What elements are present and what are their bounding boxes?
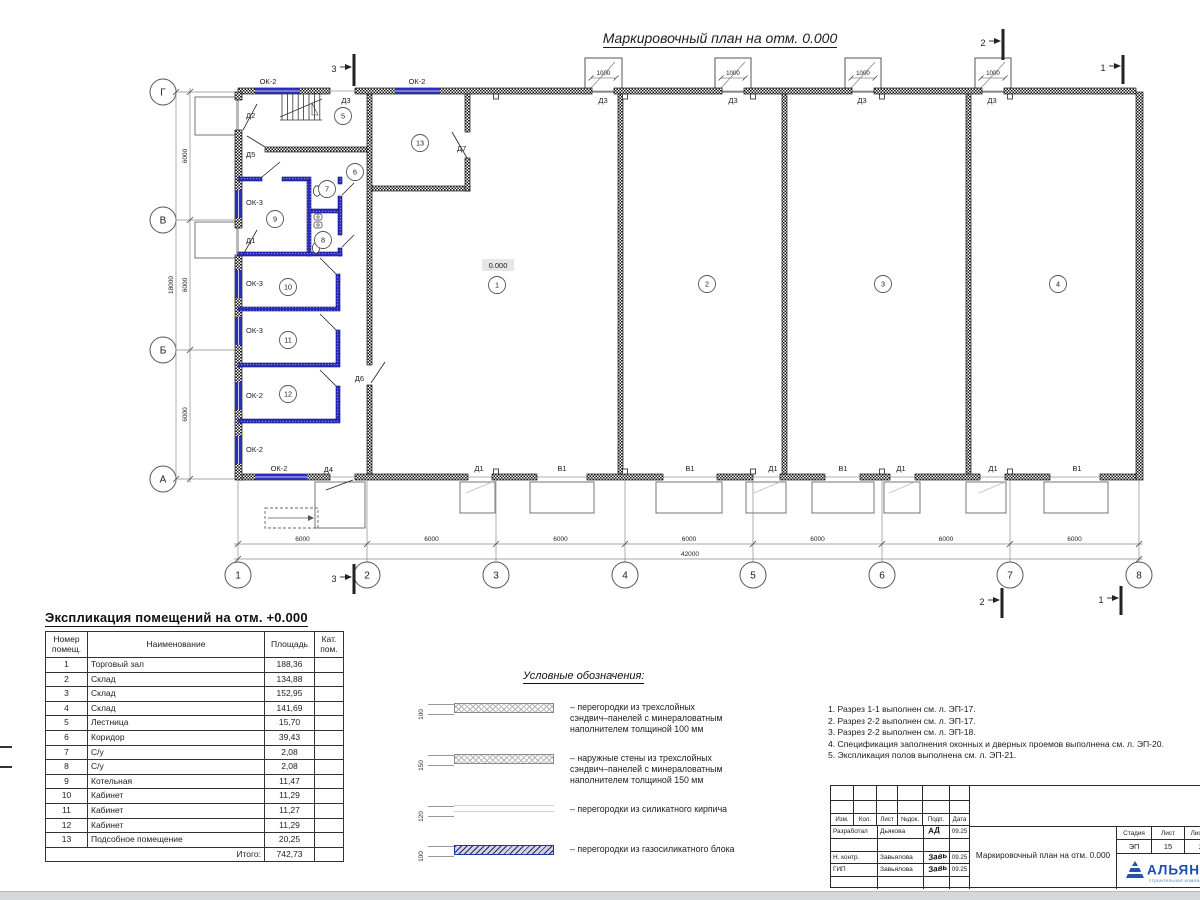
explication-table-body: 1Торговый зал188,362Склад134,883Склад152… bbox=[46, 658, 344, 862]
svg-text:1000: 1000 bbox=[597, 70, 611, 77]
room-cat bbox=[315, 745, 344, 760]
legend-swatch bbox=[454, 805, 554, 812]
svg-text:1000: 1000 bbox=[856, 70, 870, 77]
svg-text:Д3: Д3 bbox=[728, 96, 737, 105]
room-cat bbox=[315, 658, 344, 673]
svg-text:2: 2 bbox=[980, 38, 985, 48]
titleblock-cell bbox=[853, 786, 876, 800]
total-empty bbox=[315, 847, 344, 862]
table-row: 9Котельная11,47 bbox=[46, 774, 344, 789]
svg-text:9: 9 bbox=[273, 215, 277, 224]
svg-text:7: 7 bbox=[325, 185, 329, 194]
svg-text:2: 2 bbox=[979, 597, 984, 607]
table-row: 8С/у2,08 bbox=[46, 760, 344, 775]
svg-text:В1: В1 bbox=[557, 464, 566, 473]
titleblock-cell bbox=[897, 800, 922, 814]
titleblock-doc-title: Маркировочный план на отм. 0.000 bbox=[969, 826, 1116, 889]
svg-text:6: 6 bbox=[353, 168, 357, 177]
note-line: 4. Спецификация заполнения оконных и две… bbox=[828, 739, 1200, 751]
svg-text:3: 3 bbox=[881, 280, 885, 289]
titleblock-role bbox=[831, 876, 877, 889]
titleblock-date: 09.25 bbox=[949, 863, 969, 876]
svg-text:6000: 6000 bbox=[295, 536, 310, 543]
room-cat bbox=[315, 833, 344, 848]
svg-text:3: 3 bbox=[331, 64, 336, 74]
table-row: 12Кабинет11,29 bbox=[46, 818, 344, 833]
titleblock-header: Кол. bbox=[853, 813, 876, 825]
room-name: Подсобное помещение bbox=[88, 833, 265, 848]
svg-text:6: 6 bbox=[879, 571, 885, 582]
svg-text:Д1: Д1 bbox=[988, 464, 997, 473]
svg-text:1000: 1000 bbox=[986, 70, 1000, 77]
sheets-value: 2 bbox=[1184, 839, 1200, 853]
room-name: Склад bbox=[88, 672, 265, 687]
room-name: Коридор bbox=[88, 730, 265, 745]
room-name: Склад bbox=[88, 687, 265, 702]
walls-layer bbox=[235, 88, 1143, 480]
legend-item-label: – перегородки из трехслойных сэндвич–пан… bbox=[570, 702, 723, 735]
svg-text:3: 3 bbox=[493, 571, 499, 582]
explication-col-header: Наименование bbox=[88, 632, 265, 658]
svg-text:12: 12 bbox=[284, 390, 292, 399]
svg-text:Д3: Д3 bbox=[598, 96, 607, 105]
svg-text:Б: Б bbox=[160, 346, 167, 357]
alliance-triangle-icon bbox=[1125, 860, 1145, 880]
titleblock-name: Завьялова bbox=[877, 863, 923, 876]
stage-value: ЭП bbox=[1116, 839, 1151, 853]
titleblock-role: ГИП bbox=[831, 863, 877, 876]
titleblock-date: 09.25 bbox=[949, 825, 969, 838]
table-row: 7С/у2,08 bbox=[46, 745, 344, 760]
room-number: 2 bbox=[46, 672, 88, 687]
svg-text:Г: Г bbox=[160, 88, 166, 99]
titleblock-upper-cell bbox=[969, 786, 1200, 826]
legend-dim: 120 bbox=[418, 804, 454, 826]
sheet-value: 15 bbox=[1151, 839, 1184, 853]
room-number: 13 bbox=[46, 833, 88, 848]
title-block: Изм.Кол.Лист№док.Подп.ДатаРазработалДьяк… bbox=[830, 785, 1200, 888]
room-area: 15,70 bbox=[265, 716, 315, 731]
room-area: 11,47 bbox=[265, 774, 315, 789]
company-subtitle: строительная компания bbox=[1149, 878, 1200, 883]
svg-text:18000: 18000 bbox=[168, 276, 175, 294]
titleblock-date bbox=[949, 838, 969, 851]
svg-text:8: 8 bbox=[1136, 571, 1142, 582]
room-name: Котельная bbox=[88, 774, 265, 789]
svg-text:42000: 42000 bbox=[681, 551, 699, 558]
room-name: Склад bbox=[88, 701, 265, 716]
room-cat bbox=[315, 730, 344, 745]
svg-text:ОК-3: ОК-3 bbox=[246, 326, 263, 335]
note-line: 2. Разрез 2-2 выполнен см. л. ЭП-17. bbox=[828, 716, 1200, 728]
room-name: Кабинет bbox=[88, 818, 265, 833]
titleblock-signature: Завь bbox=[923, 863, 949, 876]
legend-swatch bbox=[454, 754, 554, 764]
legend-title: Условные обозначения: bbox=[523, 670, 644, 684]
table-row: 11Кабинет11,27 bbox=[46, 803, 344, 818]
drawing-sheet: Маркировочный план на отм. 0.000 1000100… bbox=[0, 0, 1200, 900]
titleblock-cell bbox=[949, 786, 969, 800]
svg-text:6000: 6000 bbox=[182, 277, 189, 292]
legend-swatch bbox=[454, 845, 554, 855]
svg-text:Д3: Д3 bbox=[987, 96, 996, 105]
room-number: 5 bbox=[46, 716, 88, 731]
titleblock-header: Подп. bbox=[922, 813, 949, 825]
room-cat bbox=[315, 774, 344, 789]
room-name: Кабинет bbox=[88, 803, 265, 818]
svg-text:Д2: Д2 bbox=[246, 111, 255, 120]
sheet-label: Лист bbox=[1151, 826, 1184, 839]
svg-text:1: 1 bbox=[1100, 63, 1105, 73]
room-number: 9 bbox=[46, 774, 88, 789]
titleblock-signature: АД bbox=[923, 825, 949, 838]
room-cat bbox=[315, 818, 344, 833]
svg-text:ОК-2: ОК-2 bbox=[271, 464, 288, 473]
company-name: АЛЬЯНС bbox=[1147, 863, 1200, 878]
svg-text:Д6: Д6 bbox=[355, 374, 364, 383]
titleblock-date: 09.25 bbox=[949, 851, 969, 864]
table-row: 13Подсобное помещение20,25 bbox=[46, 833, 344, 848]
room-number: 4 bbox=[46, 701, 88, 716]
explication-title: Экспликация помещений на отм. +0.000 bbox=[45, 610, 308, 627]
svg-text:ОК-3: ОК-3 bbox=[246, 198, 263, 207]
explication-col-header: Площадь bbox=[265, 632, 315, 658]
legend-item: 120– перегородки из силикатного кирпича bbox=[418, 804, 818, 826]
legend-dim: 100 bbox=[418, 844, 454, 866]
svg-text:10: 10 bbox=[284, 283, 292, 292]
room-number: 7 bbox=[46, 745, 88, 760]
titleblock-role bbox=[831, 838, 877, 851]
total-value: 742,73 bbox=[265, 847, 315, 862]
legend-item: 100– перегородки из трехслойных сэндвич–… bbox=[418, 702, 818, 735]
legend-dim: 150 bbox=[418, 753, 454, 775]
table-total-row: Итого:742,73 bbox=[46, 847, 344, 862]
svg-text:1: 1 bbox=[235, 571, 241, 582]
svg-text:Д1: Д1 bbox=[246, 236, 255, 245]
svg-text:6000: 6000 bbox=[182, 407, 189, 422]
room-name: Торговый зал bbox=[88, 658, 265, 673]
titleblock-role: Н. контр. bbox=[831, 851, 877, 864]
legend-item-label: – перегородки из силикатного кирпича bbox=[570, 804, 727, 815]
note-line: 1. Разрез 1-1 выполнен см. л. ЭП-17. bbox=[828, 704, 1200, 716]
svg-text:7: 7 bbox=[1007, 571, 1013, 582]
svg-text:Д1: Д1 bbox=[768, 464, 777, 473]
titleblock-header: Дата bbox=[949, 813, 969, 825]
titleblock-role: Разработал bbox=[831, 825, 877, 838]
table-row: 3Склад152,95 bbox=[46, 687, 344, 702]
room-cat bbox=[315, 687, 344, 702]
svg-text:Д7: Д7 bbox=[457, 144, 466, 153]
svg-text:Д4: Д4 bbox=[324, 465, 333, 474]
note-line: 5. Экспликация полов выполнена см. л. ЭП… bbox=[828, 750, 1200, 762]
table-row: 10Кабинет11,29 bbox=[46, 789, 344, 804]
titleblock-header: Лист bbox=[876, 813, 897, 825]
room-cat bbox=[315, 760, 344, 775]
titleblock-cell bbox=[831, 800, 853, 814]
table-row: 4Склад141,69 bbox=[46, 701, 344, 716]
svg-text:4: 4 bbox=[1056, 280, 1060, 289]
legend-item-label: – перегородки из газосиликатного блока bbox=[570, 844, 735, 855]
room-area: 11,27 bbox=[265, 803, 315, 818]
room-name: С/у bbox=[88, 760, 265, 775]
titleblock-name bbox=[877, 838, 923, 851]
svg-text:В1: В1 bbox=[685, 464, 694, 473]
table-row: 2Склад134,88 bbox=[46, 672, 344, 687]
svg-text:6000: 6000 bbox=[553, 536, 568, 543]
room-area: 20,25 bbox=[265, 833, 315, 848]
svg-text:2: 2 bbox=[705, 280, 709, 289]
svg-text:6000: 6000 bbox=[810, 536, 825, 543]
titleblock-name bbox=[877, 876, 923, 889]
sheet-binding-mark bbox=[0, 766, 12, 768]
room-cat bbox=[315, 672, 344, 687]
svg-text:6000: 6000 bbox=[424, 536, 439, 543]
svg-text:В1: В1 bbox=[1072, 464, 1081, 473]
total-label: Итого: bbox=[46, 847, 265, 862]
titleblock-signature bbox=[923, 876, 949, 889]
titleblock-cell bbox=[922, 786, 949, 800]
legend-item-label: – наружные стены из трехслойных сэндвич–… bbox=[570, 753, 723, 786]
explication-table: Номер помещ.НаименованиеПлощадьКат. пом.… bbox=[45, 631, 344, 862]
titleblock-header: Изм. bbox=[831, 813, 853, 825]
room-number: 10 bbox=[46, 789, 88, 804]
explication-col-header: Номер помещ. bbox=[46, 632, 88, 658]
company-logo: АЛЬЯНСстроительная компания bbox=[1116, 853, 1200, 889]
room-area: 39,43 bbox=[265, 730, 315, 745]
svg-text:ОК-3: ОК-3 bbox=[246, 279, 263, 288]
table-row: 6Коридор39,43 bbox=[46, 730, 344, 745]
titleblock-date bbox=[949, 876, 969, 889]
svg-text:ОК-2: ОК-2 bbox=[409, 77, 426, 86]
svg-text:В: В bbox=[160, 216, 167, 227]
svg-text:ОК-2: ОК-2 bbox=[246, 391, 263, 400]
legend: Условные обозначения: 100– перегородки и… bbox=[418, 666, 818, 866]
svg-text:Д5: Д5 bbox=[246, 150, 255, 159]
room-number: 12 bbox=[46, 818, 88, 833]
table-row: 1Торговый зал188,36 bbox=[46, 658, 344, 673]
svg-text:4: 4 bbox=[622, 571, 628, 582]
table-row: 5Лестница15,70 bbox=[46, 716, 344, 731]
room-number: 3 bbox=[46, 687, 88, 702]
svg-text:ОК-2: ОК-2 bbox=[246, 445, 263, 454]
room-area: 2,08 bbox=[265, 760, 315, 775]
svg-text:Д1: Д1 bbox=[896, 464, 905, 473]
titleblock-cell bbox=[876, 800, 897, 814]
svg-text:6000: 6000 bbox=[939, 536, 954, 543]
room-cat bbox=[315, 803, 344, 818]
room-area: 141,69 bbox=[265, 701, 315, 716]
svg-text:В1: В1 bbox=[838, 464, 847, 473]
room-cat bbox=[315, 716, 344, 731]
svg-text:Д3: Д3 bbox=[341, 96, 350, 105]
svg-text:5: 5 bbox=[341, 112, 345, 121]
notes-list: 1. Разрез 1-1 выполнен см. л. ЭП-17.2. Р… bbox=[828, 704, 1200, 762]
sheets-label: Листов bbox=[1184, 826, 1200, 839]
room-area: 11,29 bbox=[265, 818, 315, 833]
room-area: 188,36 bbox=[265, 658, 315, 673]
floor-plan: 1000100010001000ГВБА12345678600060006000… bbox=[0, 0, 1200, 620]
svg-text:Д1: Д1 bbox=[474, 464, 483, 473]
svg-text:1: 1 bbox=[495, 281, 499, 290]
explication-table-head: Номер помещ.НаименованиеПлощадьКат. пом. bbox=[46, 632, 344, 658]
legend-item: 150– наружные стены из трехслойных сэндв… bbox=[418, 753, 818, 786]
room-number: 6 bbox=[46, 730, 88, 745]
svg-text:13: 13 bbox=[416, 139, 424, 148]
sheet-binding-mark bbox=[0, 746, 12, 748]
room-cat bbox=[315, 701, 344, 716]
svg-text:0.000: 0.000 bbox=[489, 261, 508, 270]
svg-text:11: 11 bbox=[284, 336, 292, 345]
svg-text:6000: 6000 bbox=[1067, 536, 1082, 543]
svg-text:А: А bbox=[160, 475, 167, 486]
room-area: 11,29 bbox=[265, 789, 315, 804]
titleblock-cell bbox=[897, 786, 922, 800]
room-number: 11 bbox=[46, 803, 88, 818]
titleblock-header: №док. bbox=[897, 813, 922, 825]
titleblock-signature bbox=[923, 838, 949, 851]
dimensions-layer: ГВБА123456786000600060006000600060006000… bbox=[150, 29, 1152, 618]
titleblock-cell bbox=[853, 800, 876, 814]
stage-label: Стадия bbox=[1116, 826, 1151, 839]
svg-text:ОК-2: ОК-2 bbox=[260, 77, 277, 86]
sheet-edge bbox=[0, 891, 1200, 900]
room-area: 2,08 bbox=[265, 745, 315, 760]
legend-item: 100– перегородки из газосиликатного блок… bbox=[418, 844, 818, 866]
titleblock-cell bbox=[831, 786, 853, 800]
legend-dim: 100 bbox=[418, 702, 454, 724]
svg-text:1000: 1000 bbox=[726, 70, 740, 77]
svg-text:6000: 6000 bbox=[182, 148, 189, 163]
svg-text:Д3: Д3 bbox=[857, 96, 866, 105]
svg-text:3: 3 bbox=[331, 574, 336, 584]
svg-text:2: 2 bbox=[364, 571, 370, 582]
svg-text:8: 8 bbox=[321, 236, 325, 245]
titleblock-name: Завьялова bbox=[877, 851, 923, 864]
titleblock-cell bbox=[949, 800, 969, 814]
room-name: Лестница bbox=[88, 716, 265, 731]
room-cat bbox=[315, 789, 344, 804]
titleblock-signature: Завь bbox=[923, 851, 949, 864]
titleblock-name: Дьякова bbox=[877, 825, 923, 838]
room-number: 1 bbox=[46, 658, 88, 673]
svg-text:1: 1 bbox=[1098, 595, 1103, 605]
svg-text:5: 5 bbox=[750, 571, 756, 582]
explication: Экспликация помещений на отм. +0.000 Ном… bbox=[45, 609, 317, 862]
room-area: 134,88 bbox=[265, 672, 315, 687]
legend-swatch bbox=[454, 703, 554, 713]
titleblock-cell bbox=[922, 800, 949, 814]
details-layer bbox=[243, 93, 1013, 493]
room-number: 8 bbox=[46, 760, 88, 775]
legend-items: 100– перегородки из трехслойных сэндвич–… bbox=[418, 702, 818, 866]
titleblock-cell bbox=[876, 786, 897, 800]
note-line: 3. Разрез 2-2 выполнен см. л. ЭП-18. bbox=[828, 727, 1200, 739]
explication-col-header: Кат. пом. bbox=[315, 632, 344, 658]
room-name: Кабинет bbox=[88, 789, 265, 804]
room-name: С/у bbox=[88, 745, 265, 760]
room-area: 152,95 bbox=[265, 687, 315, 702]
svg-text:6000: 6000 bbox=[682, 536, 697, 543]
